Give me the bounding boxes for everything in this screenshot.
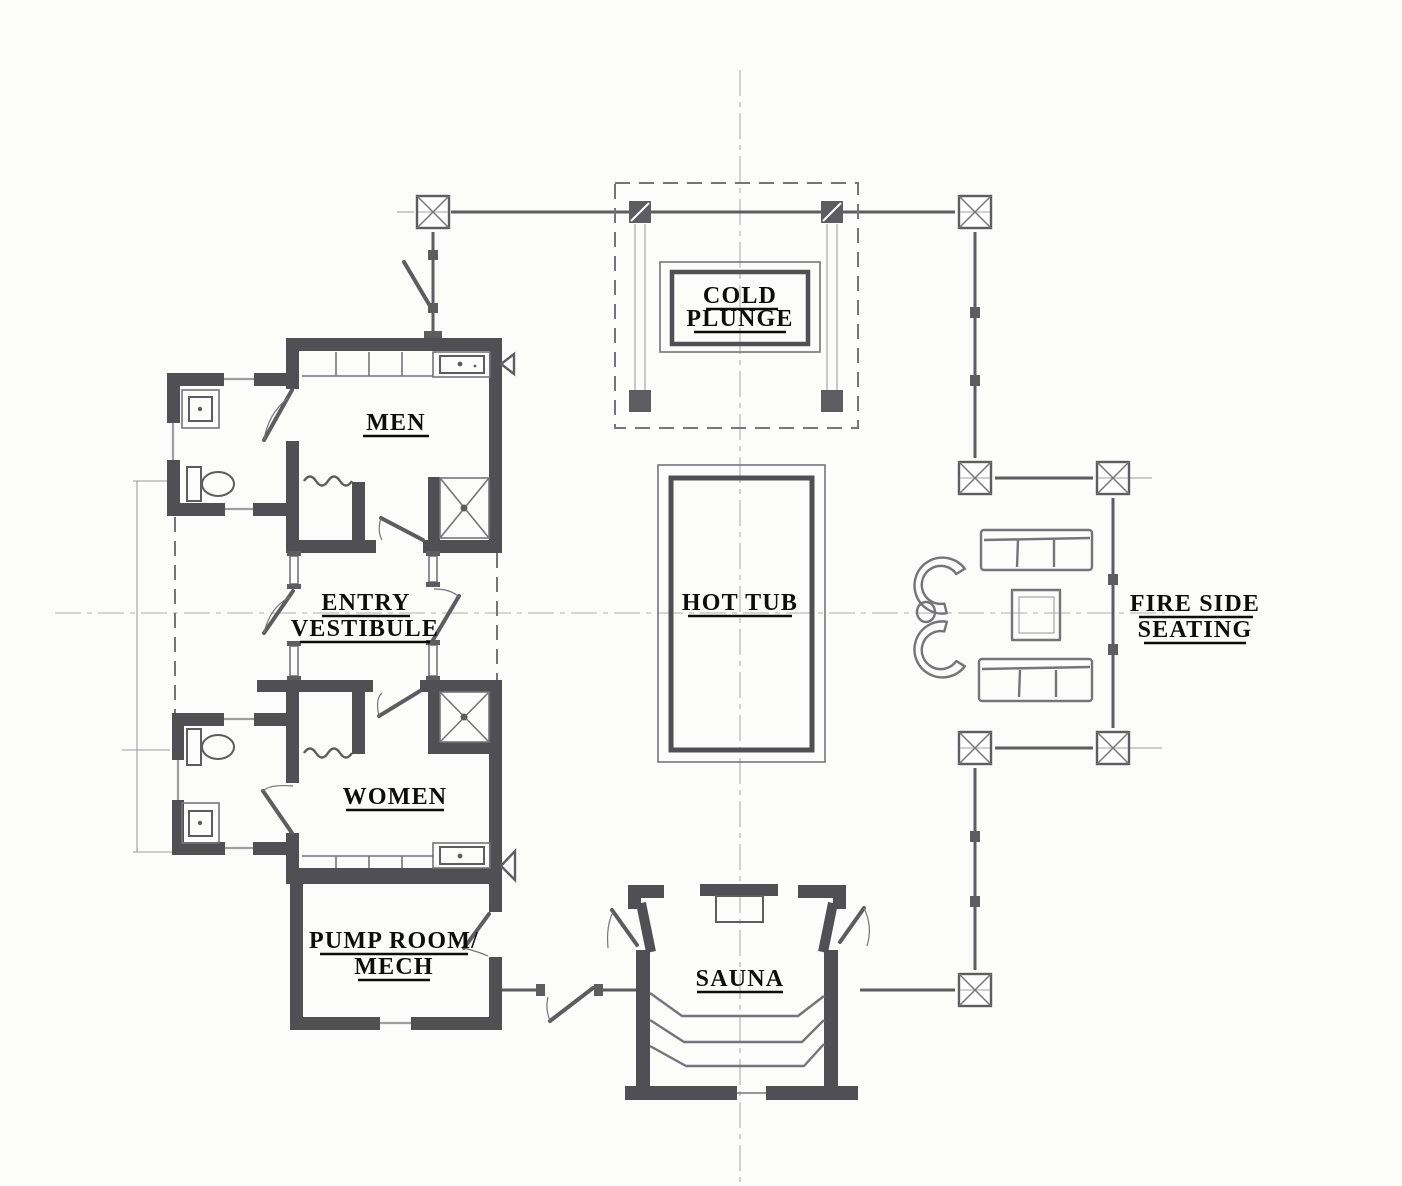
timber-post-symbol xyxy=(1097,732,1129,764)
fence-post xyxy=(1108,644,1118,655)
label-cold-plunge: PLUNGE xyxy=(686,306,793,332)
floor-plan-drawing: COLD PLUNGE HOT TUB MEN ENTRY VESTIBULE … xyxy=(0,0,1402,1186)
label-sauna: SAUNA xyxy=(696,966,785,992)
fence-post xyxy=(1108,574,1118,585)
canopy-post xyxy=(821,390,843,412)
timber-post-symbol xyxy=(417,196,449,228)
timber-post-symbol xyxy=(959,732,991,764)
label-fire-side-seating: FIRE SIDE xyxy=(1130,591,1260,617)
timber-post-symbol xyxy=(959,196,991,228)
fence-post xyxy=(970,896,980,907)
canopy-post xyxy=(821,201,843,223)
canopy-post xyxy=(629,390,651,412)
label-pump-room: PUMP ROOM/ xyxy=(309,928,479,954)
label-pump-room: MECH xyxy=(354,954,433,980)
timber-post-symbol xyxy=(959,462,991,494)
fence-post xyxy=(970,831,980,842)
label-entry-vestibule: ENTRY xyxy=(321,590,410,616)
canopy-post xyxy=(629,201,651,223)
label-fire-side-seating: SEATING xyxy=(1138,617,1253,643)
label-hot-tub: HOT TUB xyxy=(682,590,798,616)
timber-post-symbol xyxy=(1097,462,1129,494)
fence-post xyxy=(970,375,980,386)
label-entry-vestibule: VESTIBULE xyxy=(291,616,439,642)
label-men: MEN xyxy=(366,410,426,436)
label-women: WOMEN xyxy=(343,784,448,810)
timber-post-symbol xyxy=(959,974,991,1006)
fence-post xyxy=(970,307,980,318)
